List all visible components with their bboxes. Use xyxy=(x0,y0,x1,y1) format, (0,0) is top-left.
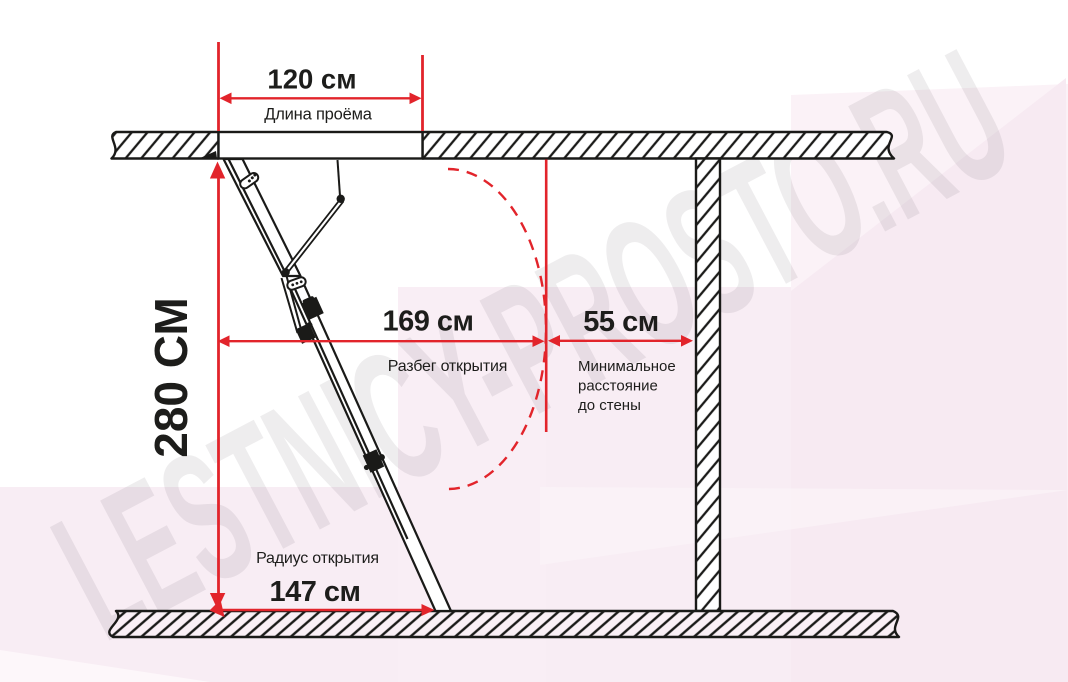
svg-text:280 СМ: 280 СМ xyxy=(145,297,197,457)
svg-text:Минимальное: Минимальное xyxy=(578,358,676,375)
svg-text:120 см: 120 см xyxy=(267,64,356,95)
svg-text:169 см: 169 см xyxy=(382,306,473,338)
svg-text:до стены: до стены xyxy=(578,397,641,414)
svg-text:55 см: 55 см xyxy=(583,306,658,338)
svg-text:Разбег открытия: Разбег открытия xyxy=(388,358,507,375)
svg-text:Длина проёма: Длина проёма xyxy=(264,106,373,124)
svg-text:147 см: 147 см xyxy=(269,576,360,608)
svg-text:расстояние: расстояние xyxy=(578,378,658,395)
svg-text:Радиус открытия: Радиус открытия xyxy=(256,550,379,567)
